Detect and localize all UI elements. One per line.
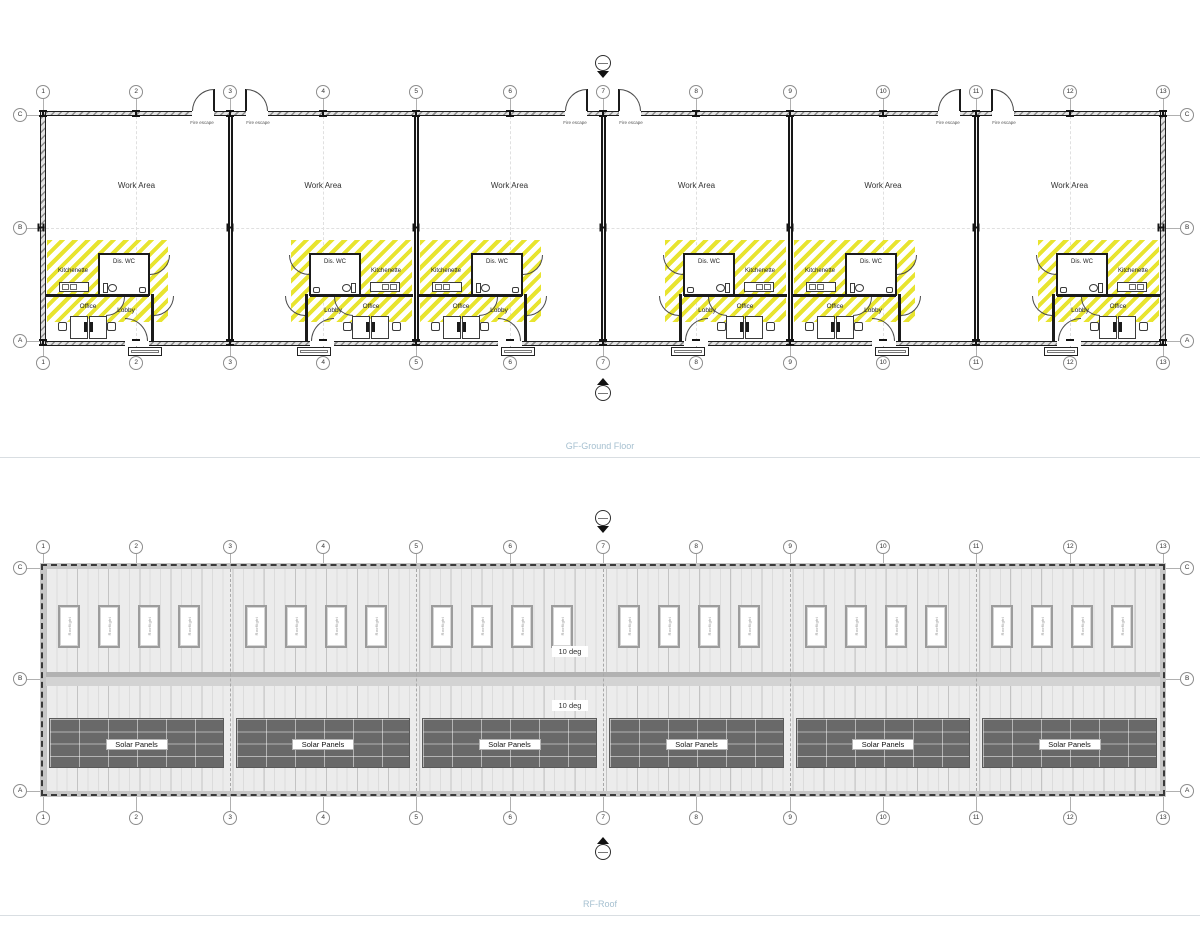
- view-separator: [0, 915, 1200, 916]
- grid-tick: [230, 554, 231, 563]
- entrance-canopy: [297, 347, 331, 356]
- office-chair: [805, 322, 814, 331]
- kitchenette-label: Kitchenette: [735, 267, 785, 274]
- grid-bubble: 5: [409, 811, 423, 825]
- rooflight: Rooflight: [471, 605, 493, 648]
- rooflight: Rooflight: [698, 605, 720, 648]
- grid-tick: [603, 346, 604, 356]
- rooflight: Rooflight: [658, 605, 680, 648]
- grid-bubble: 12: [1063, 356, 1077, 370]
- desk-monitor: [740, 322, 743, 332]
- rooflight: Rooflight: [991, 605, 1013, 648]
- door-swing-arc: [565, 89, 587, 111]
- grid-bubble: 1: [36, 356, 50, 370]
- grid-bubble: 5: [409, 85, 423, 99]
- grid-bubble: A: [1180, 334, 1194, 348]
- entrance-canopy: [128, 347, 162, 356]
- rooflight-label: Rooflight: [667, 617, 672, 636]
- grid-tick: [1166, 568, 1180, 569]
- rooflight-label: Rooflight: [107, 617, 112, 636]
- rooflight: Rooflight: [138, 605, 160, 648]
- desk-monitor: [84, 322, 87, 332]
- grid-tick: [416, 554, 417, 563]
- section-marker-line: [598, 393, 608, 394]
- rooflight: Rooflight: [178, 605, 200, 648]
- sink-bowl: [756, 284, 763, 290]
- grid-bubble: C: [13, 561, 27, 575]
- grid-bubble: 9: [783, 540, 797, 554]
- office-chair: [1090, 322, 1099, 331]
- rooflight-label: Rooflight: [67, 617, 72, 636]
- grid-tick: [136, 797, 137, 811]
- work-area-label: Work Area: [793, 181, 973, 191]
- interior-wall: [793, 294, 896, 297]
- steel-column: [39, 339, 47, 346]
- rooflight-label: Rooflight: [334, 617, 339, 636]
- steel-column: [506, 110, 514, 117]
- kitchenette-label: Kitchenette: [421, 267, 471, 274]
- grid-bubble: 9: [783, 356, 797, 370]
- section-marker-line: [598, 63, 608, 64]
- interior-wall: [419, 294, 522, 297]
- section-arrow-icon: [597, 71, 609, 78]
- grid-bubble: 11: [969, 811, 983, 825]
- sink-bowl: [1129, 284, 1136, 290]
- desk-monitor: [457, 322, 460, 332]
- entrance-opening: [1057, 341, 1081, 346]
- fire-escape-label: Fire escape: [613, 120, 649, 126]
- grid-tick: [27, 679, 40, 680]
- work-area-label: Work Area: [419, 181, 600, 191]
- grid-bubble: 3: [223, 811, 237, 825]
- fire-escape-label: Fire escape: [240, 120, 276, 126]
- steel-column: [413, 224, 420, 232]
- grid-bubble: 4: [316, 811, 330, 825]
- grid-bubble: 6: [503, 811, 517, 825]
- grid-bubble: 12: [1063, 811, 1077, 825]
- steel-column: [132, 110, 140, 117]
- office-chair: [431, 322, 440, 331]
- solar-panel-label: Solar Panels: [479, 739, 541, 750]
- grid-bubble: 2: [129, 540, 143, 554]
- interior-wall: [684, 294, 787, 297]
- rooflight-label: Rooflight: [1040, 617, 1045, 636]
- fire-escape-opening: [192, 111, 214, 116]
- grid-tick: [510, 554, 511, 563]
- office-chair: [766, 322, 775, 331]
- entrance-opening: [498, 341, 522, 346]
- door-swing-arc: [901, 296, 921, 316]
- rooflight: Rooflight: [1031, 605, 1053, 648]
- rooflight: Rooflight: [431, 605, 453, 648]
- entrance-canopy: [1044, 347, 1078, 356]
- steel-column: [227, 224, 234, 232]
- rooflight-label: Rooflight: [187, 617, 192, 636]
- rooflight-label: Rooflight: [294, 617, 299, 636]
- steel-column: [319, 110, 327, 117]
- desk-monitor: [831, 322, 834, 332]
- door-swing-arc: [938, 89, 960, 111]
- lobby-wall: [679, 294, 682, 341]
- grid-tick: [43, 346, 44, 356]
- toilet-bowl: [481, 284, 490, 292]
- rooflight: Rooflight: [98, 605, 120, 648]
- grid-bubble: 6: [503, 85, 517, 99]
- grid-bubble: 3: [223, 356, 237, 370]
- door-swing-arc: [285, 296, 305, 316]
- wc-label: Dis. WC: [311, 258, 359, 265]
- grid-bubble: A: [13, 334, 27, 348]
- steel-column: [1159, 110, 1167, 117]
- toilet-bowl: [342, 284, 351, 292]
- rooflight-label: Rooflight: [1000, 617, 1005, 636]
- rooflight: Rooflight: [365, 605, 387, 648]
- grid-bubble: B: [13, 672, 27, 686]
- entrance-canopy: [501, 347, 535, 356]
- grid-bubble: 1: [36, 811, 50, 825]
- rooflight-label: Rooflight: [814, 617, 819, 636]
- roof-panel-joint: [790, 569, 791, 791]
- rooflight-label: Rooflight: [934, 617, 939, 636]
- wash-basin: [139, 287, 146, 293]
- rooflight-label: Rooflight: [147, 617, 152, 636]
- grid-tick: [1166, 228, 1180, 229]
- roof-panel-joint: [603, 569, 604, 791]
- toilet-cistern: [725, 283, 730, 293]
- view-separator: [0, 457, 1200, 458]
- rooflight: Rooflight: [245, 605, 267, 648]
- grid-tick: [883, 554, 884, 563]
- grid-bubble: 11: [969, 540, 983, 554]
- grid-tick: [976, 797, 977, 811]
- grid-bubble: 4: [316, 356, 330, 370]
- grid-bubble: B: [13, 221, 27, 235]
- grid-tick: [1070, 797, 1071, 811]
- desk-monitor: [372, 322, 375, 332]
- grid-bubble: 7: [596, 85, 610, 99]
- rooflight: Rooflight: [738, 605, 760, 648]
- grid-tick: [696, 554, 697, 563]
- office-chair: [717, 322, 726, 331]
- grid-bubble: 9: [783, 811, 797, 825]
- wc-label: Dis. WC: [685, 258, 733, 265]
- desk-monitor: [463, 322, 466, 332]
- grid-bubble: 13: [1156, 356, 1170, 370]
- steel-column: [972, 339, 980, 346]
- sink-bowl: [390, 284, 397, 290]
- steel-column: [879, 110, 887, 117]
- grid-tick: [790, 797, 791, 811]
- grid-tick: [790, 554, 791, 563]
- toilet-cistern: [351, 283, 356, 293]
- fire-escape-label: Fire escape: [184, 120, 220, 126]
- rooflight-label: Rooflight: [374, 617, 379, 636]
- interior-wall: [310, 294, 413, 297]
- grid-tick: [43, 797, 44, 811]
- grid-bubble: 10: [876, 540, 890, 554]
- fire-escape-label: Fire escape: [557, 120, 593, 126]
- grid-bubble: 2: [129, 356, 143, 370]
- fire-escape-opening: [246, 111, 268, 116]
- entrance-opening: [310, 341, 334, 346]
- section-marker-line: [598, 518, 608, 519]
- interior-wall: [46, 294, 149, 297]
- steel-column: [412, 339, 420, 346]
- wash-basin: [1060, 287, 1067, 293]
- office-chair: [107, 322, 116, 331]
- grid-bubble: 6: [503, 356, 517, 370]
- grid-bubble: 7: [596, 811, 610, 825]
- grid-tick: [230, 797, 231, 811]
- steel-column: [226, 339, 234, 346]
- interior-wall: [1057, 294, 1160, 297]
- rooflight-label: Rooflight: [1080, 617, 1085, 636]
- fire-escape-label: Fire escape: [986, 120, 1022, 126]
- grid-tick: [883, 797, 884, 811]
- kitchenette-label: Kitchenette: [361, 267, 411, 274]
- wc-label: Dis. WC: [847, 258, 895, 265]
- grid-bubble: 2: [129, 811, 143, 825]
- rooflight: Rooflight: [325, 605, 347, 648]
- wash-basin: [886, 287, 893, 293]
- roof-panel-joint: [416, 569, 417, 791]
- steel-column: [38, 224, 45, 232]
- grid-bubble: C: [1180, 561, 1194, 575]
- grid-bubble: 1: [36, 540, 50, 554]
- slope-label: 10 deg: [552, 700, 588, 711]
- section-arrow-icon: [597, 837, 609, 844]
- solar-panel-label: Solar Panels: [106, 739, 168, 750]
- grid-bubble: 4: [316, 85, 330, 99]
- fire-escape-label: Fire escape: [930, 120, 966, 126]
- grid-bubble: 4: [316, 540, 330, 554]
- door-swing-arc: [619, 89, 641, 111]
- grid-bubble: B: [1180, 672, 1194, 686]
- rooflight-label: Rooflight: [440, 617, 445, 636]
- sink-bowl: [382, 284, 389, 290]
- fire-escape-opening: [992, 111, 1014, 116]
- steel-column: [600, 224, 607, 232]
- grid-bubble: 13: [1156, 85, 1170, 99]
- grid-tick: [43, 554, 44, 563]
- entrance-opening: [684, 341, 708, 346]
- grid-bubble: C: [13, 108, 27, 122]
- grid-tick: [323, 554, 324, 563]
- office-chair: [58, 322, 67, 331]
- work-area-label: Work Area: [606, 181, 787, 191]
- rooflight: Rooflight: [618, 605, 640, 648]
- grid-tick: [1166, 791, 1180, 792]
- steel-column: [39, 110, 47, 117]
- grid-bubble: 9: [783, 85, 797, 99]
- rooflight: Rooflight: [885, 605, 907, 648]
- grid-bubble: 8: [689, 356, 703, 370]
- kitchenette-label: Kitchenette: [1108, 267, 1158, 274]
- sink-bowl: [62, 284, 69, 290]
- door-swing-arc: [192, 89, 214, 111]
- door-swing-arc: [154, 296, 174, 316]
- grid-bubble: 11: [969, 356, 983, 370]
- wc-label: Dis. WC: [100, 258, 148, 265]
- grid-bubble: 1: [36, 85, 50, 99]
- rooflight-label: Rooflight: [747, 617, 752, 636]
- entrance-opening: [125, 341, 149, 346]
- sink-bowl: [817, 284, 824, 290]
- steel-column: [1158, 224, 1165, 232]
- desk-monitor: [746, 322, 749, 332]
- grid-tick: [510, 797, 511, 811]
- steel-column: [787, 224, 794, 232]
- grid-bubble: 5: [409, 540, 423, 554]
- rooflight: Rooflight: [1111, 605, 1133, 648]
- toilet-bowl: [855, 284, 864, 292]
- grid-bubble: A: [13, 784, 27, 798]
- solar-panel-label: Solar Panels: [852, 739, 914, 750]
- toilet-cistern: [1098, 283, 1103, 293]
- roof-view-title: RF-Roof: [0, 899, 1200, 909]
- grid-bubble: C: [1180, 108, 1194, 122]
- grid-bubble: 7: [596, 356, 610, 370]
- rooflight-label: Rooflight: [627, 617, 632, 636]
- toilet-bowl: [716, 284, 725, 292]
- grid-bubble: 12: [1063, 85, 1077, 99]
- work-area-label: Work Area: [46, 181, 227, 191]
- grid-tick: [1166, 115, 1180, 116]
- grid-tick: [1163, 554, 1164, 563]
- desk-monitor: [366, 322, 369, 332]
- sink-bowl: [1137, 284, 1144, 290]
- grid-tick: [1166, 341, 1180, 342]
- grid-bubble: 8: [689, 811, 703, 825]
- grid-bubble: 5: [409, 356, 423, 370]
- grid-tick: [1070, 554, 1071, 563]
- office-chair: [343, 322, 352, 331]
- fire-escape-opening: [565, 111, 587, 116]
- entrance-canopy: [671, 347, 705, 356]
- desk-monitor: [90, 322, 93, 332]
- grid-tick: [1163, 797, 1164, 811]
- rooflight-label: Rooflight: [854, 617, 859, 636]
- steel-column: [1159, 339, 1167, 346]
- work-area-label: Work Area: [233, 181, 413, 191]
- rooflight-label: Rooflight: [560, 617, 565, 636]
- ground-floor-view-title: GF-Ground Floor: [0, 441, 1200, 451]
- steel-column: [972, 110, 980, 117]
- grid-tick: [323, 797, 324, 811]
- grid-bubble: 11: [969, 85, 983, 99]
- grid-tick: [27, 791, 40, 792]
- fire-escape-opening: [619, 111, 641, 116]
- grid-tick: [230, 346, 231, 356]
- solar-panel-label: Solar Panels: [1039, 739, 1101, 750]
- rooflight-label: Rooflight: [894, 617, 899, 636]
- toilet-bowl: [1089, 284, 1098, 292]
- section-marker-line: [598, 852, 608, 853]
- solar-panel-label: Solar Panels: [292, 739, 354, 750]
- wash-basin: [687, 287, 694, 293]
- rooflight: Rooflight: [925, 605, 947, 648]
- rooflight: Rooflight: [285, 605, 307, 648]
- steel-column: [973, 224, 980, 232]
- steel-column: [599, 339, 607, 346]
- entrance-canopy: [875, 347, 909, 356]
- grid-bubble: B: [1180, 221, 1194, 235]
- wash-basin: [313, 287, 320, 293]
- toilet-bowl: [108, 284, 117, 292]
- door-swing-arc: [992, 89, 1014, 111]
- grid-tick: [27, 568, 40, 569]
- grid-bubble: 2: [129, 85, 143, 99]
- grid-tick: [1163, 346, 1164, 356]
- grid-bubble: 3: [223, 85, 237, 99]
- rooflight-label: Rooflight: [480, 617, 485, 636]
- grid-bubble: 8: [689, 85, 703, 99]
- grid-bubble: 12: [1063, 540, 1077, 554]
- grid-tick: [416, 346, 417, 356]
- grid-bubble: 6: [503, 540, 517, 554]
- lobby-wall: [1052, 294, 1055, 341]
- desk-monitor: [837, 322, 840, 332]
- door-swing-arc: [246, 89, 268, 111]
- rooflight-label: Rooflight: [1120, 617, 1125, 636]
- steel-column: [786, 339, 794, 346]
- grid-tick: [976, 346, 977, 356]
- steel-column: [226, 110, 234, 117]
- rooflight-label: Rooflight: [254, 617, 259, 636]
- grid-bubble: 3: [223, 540, 237, 554]
- grid-tick: [976, 554, 977, 563]
- door-swing-arc: [527, 296, 547, 316]
- rooflight: Rooflight: [58, 605, 80, 648]
- rooflight: Rooflight: [551, 605, 573, 648]
- rooflight-label: Rooflight: [707, 617, 712, 636]
- rooflight-label: Rooflight: [520, 617, 525, 636]
- steel-column: [692, 110, 700, 117]
- wc-label: Dis. WC: [473, 258, 521, 265]
- grid-tick: [603, 554, 604, 563]
- kitchenette-label: Kitchenette: [48, 267, 98, 274]
- office-chair: [854, 322, 863, 331]
- steel-column: [786, 110, 794, 117]
- desk-monitor: [1119, 322, 1122, 332]
- grid-bubble: 10: [876, 85, 890, 99]
- grid-bubble: 10: [876, 356, 890, 370]
- rooflight: Rooflight: [845, 605, 867, 648]
- wash-basin: [512, 287, 519, 293]
- entrance-opening: [872, 341, 896, 346]
- grid-tick: [416, 797, 417, 811]
- grid-bubble: A: [1180, 784, 1194, 798]
- roof-panel-joint: [230, 569, 231, 791]
- grid-bubble: 8: [689, 540, 703, 554]
- sink-bowl: [443, 284, 450, 290]
- sink-bowl: [764, 284, 771, 290]
- solar-panel-label: Solar Panels: [666, 739, 728, 750]
- sink-bowl: [70, 284, 77, 290]
- grid-bubble: 7: [596, 540, 610, 554]
- office-chair: [1139, 322, 1148, 331]
- door-swing-arc: [659, 296, 679, 316]
- steel-column: [412, 110, 420, 117]
- sink-bowl: [809, 284, 816, 290]
- grid-tick: [603, 797, 604, 811]
- grid-bubble: 10: [876, 811, 890, 825]
- kitchenette-label: Kitchenette: [795, 267, 845, 274]
- grid-bubble: 13: [1156, 811, 1170, 825]
- grid-tick: [136, 554, 137, 563]
- door-swing-arc: [1032, 296, 1052, 316]
- grid-bubble: 13: [1156, 540, 1170, 554]
